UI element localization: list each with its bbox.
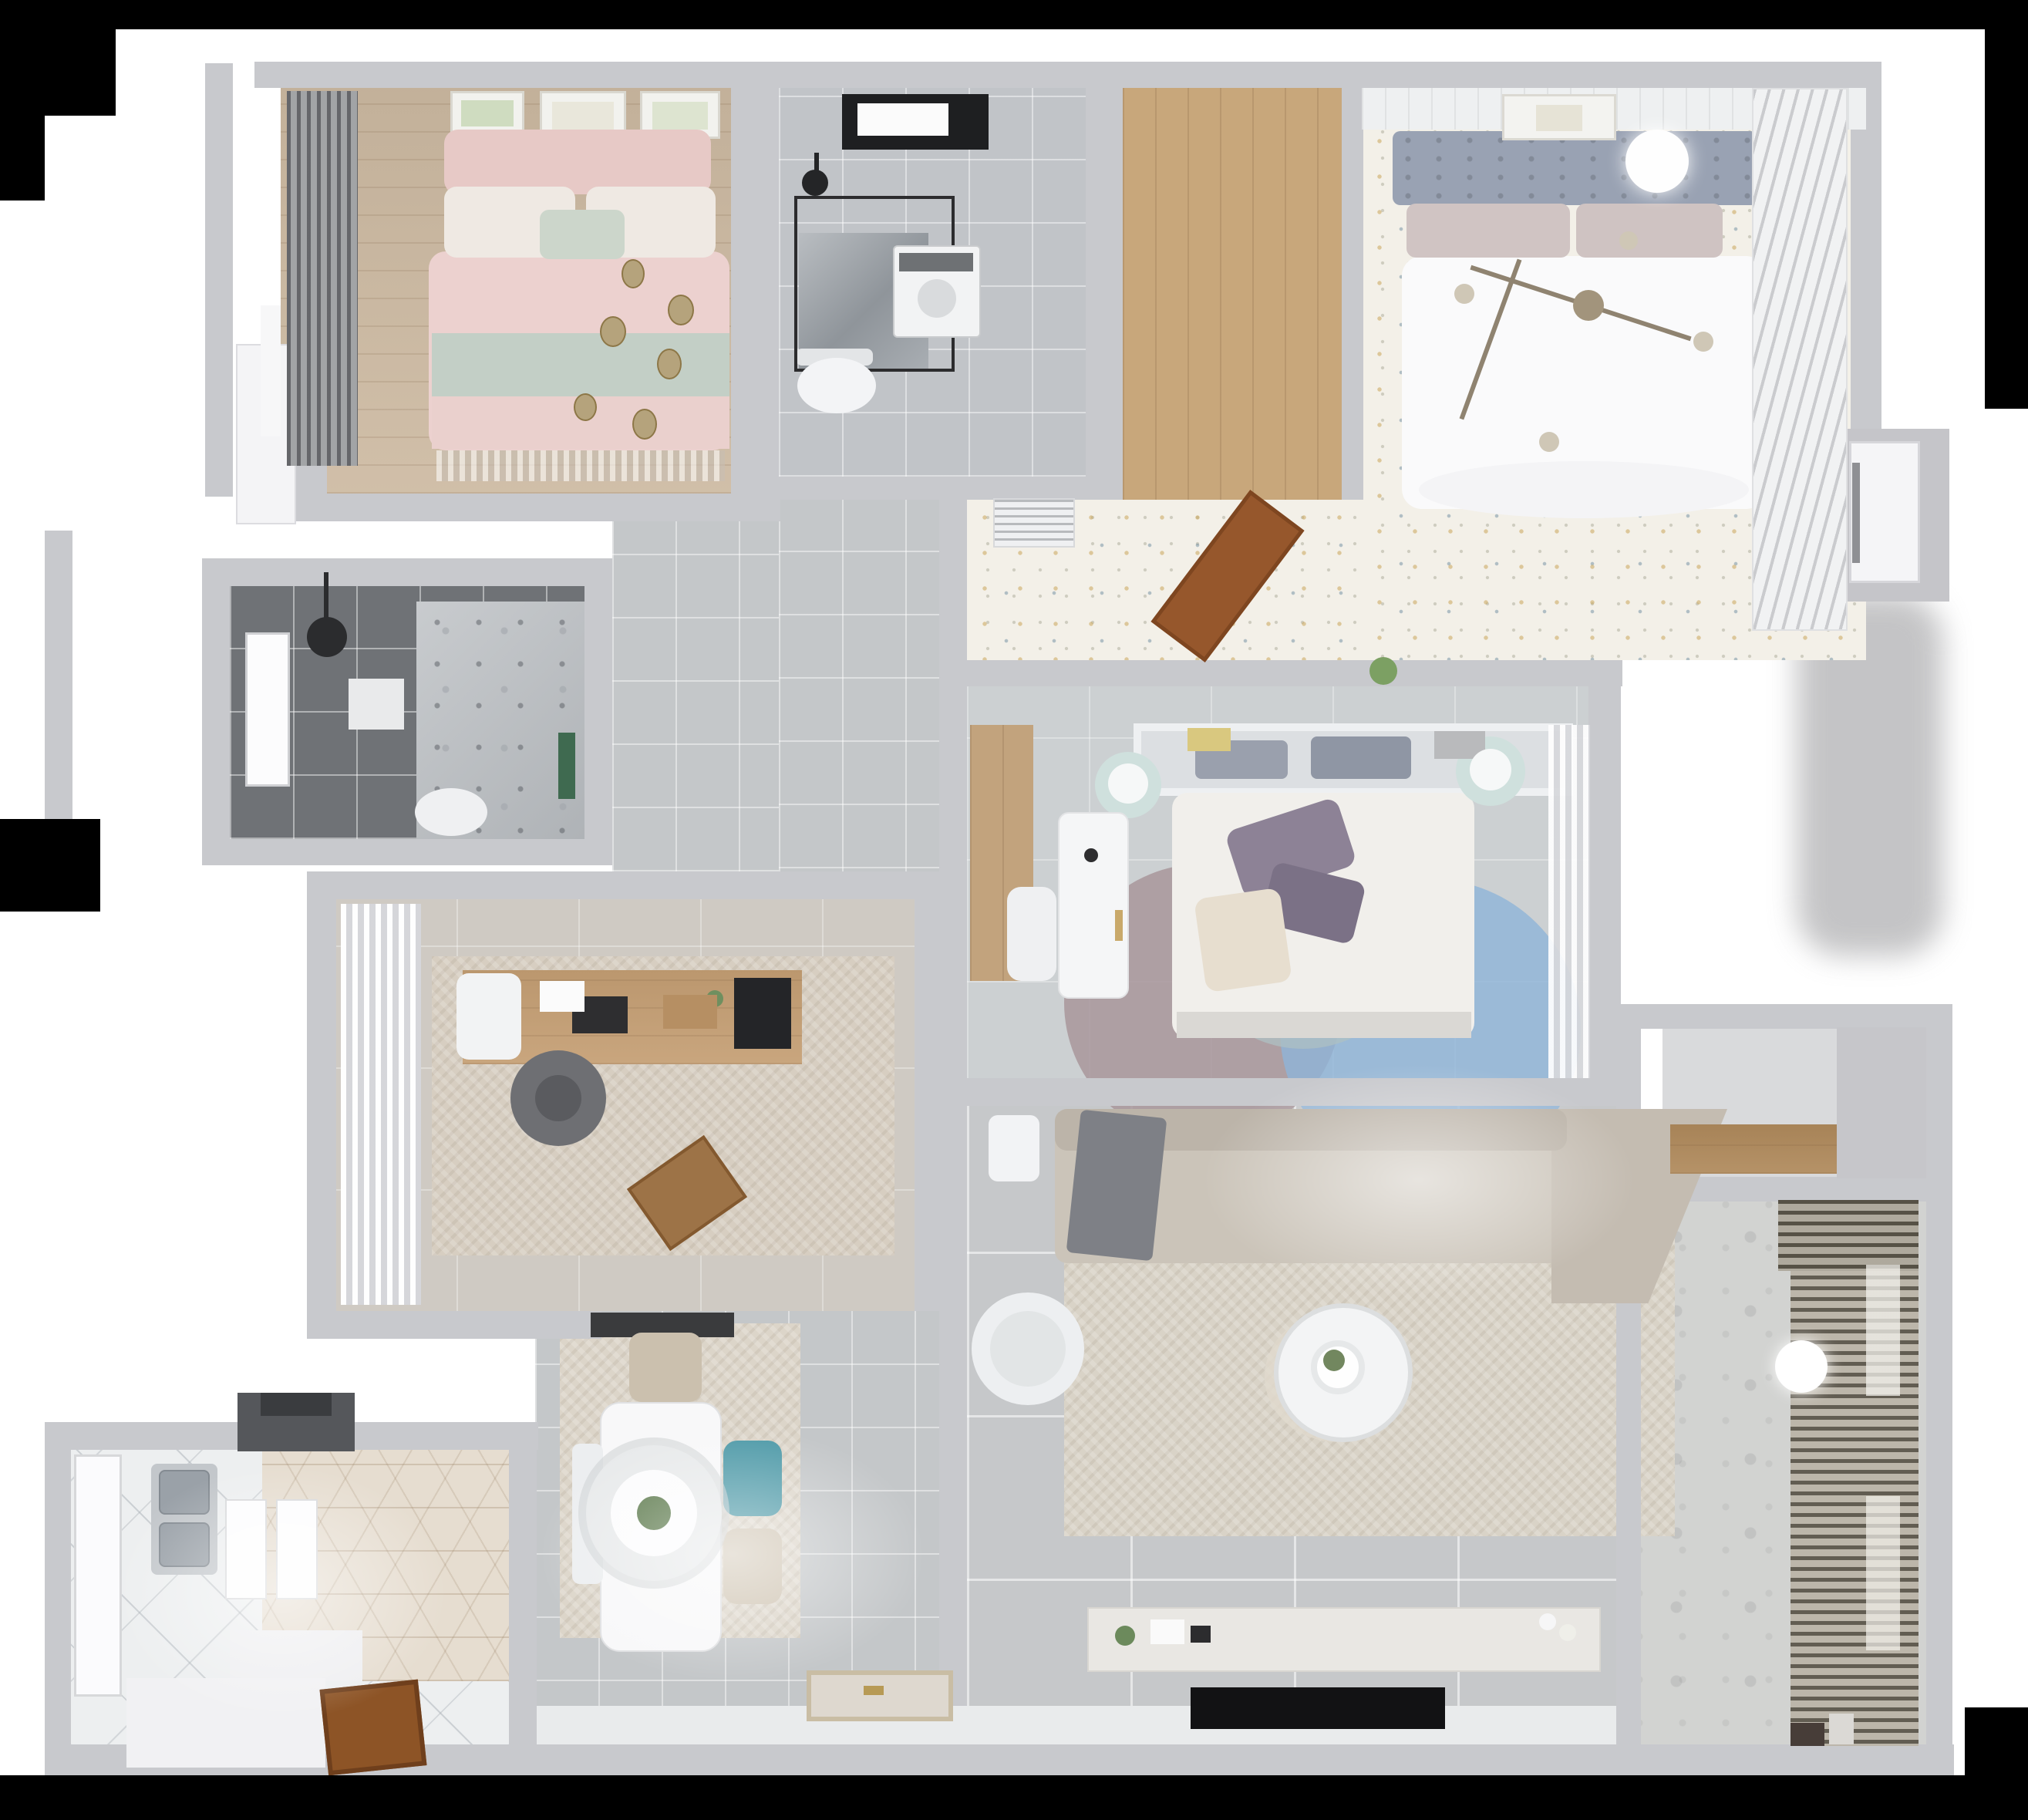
tv-panel xyxy=(1191,1687,1445,1729)
bath2-pendant xyxy=(307,617,347,657)
side-table xyxy=(989,1115,1039,1181)
bed2-desk-handle xyxy=(1115,910,1123,941)
bed2-shelf-pillow2 xyxy=(1311,736,1411,779)
balcony-sphere-light xyxy=(1775,1340,1828,1393)
coffee-table-plant xyxy=(1323,1350,1345,1371)
glow-dining xyxy=(540,1427,925,1681)
bath2-toilet xyxy=(415,788,487,836)
chandelier-bulb-5 xyxy=(632,409,657,440)
bath1-washer-panel xyxy=(899,253,973,271)
wall-bathroom2-right xyxy=(584,558,612,865)
wall-kitchen-right xyxy=(509,1422,537,1777)
master-chandelier-center xyxy=(1573,290,1604,321)
chandelier-bulb-3 xyxy=(600,316,626,347)
bath1-toilet xyxy=(797,358,876,413)
console-plant xyxy=(1115,1626,1135,1646)
master-sphere-light xyxy=(1625,130,1689,193)
master-chand-tip4 xyxy=(1619,231,1638,250)
console-box xyxy=(1150,1619,1184,1644)
chandelier-bulb-4 xyxy=(657,349,682,379)
bath2-shower-mat xyxy=(349,679,404,730)
wall-bathroom2-bottom xyxy=(202,839,612,865)
balcony-glow-2 xyxy=(1866,1496,1900,1650)
floor-hall-pocket xyxy=(612,521,779,871)
floor-closet-wood xyxy=(1123,88,1342,500)
frame-art-1 xyxy=(461,100,514,126)
master-duvet-foot xyxy=(1419,461,1749,518)
kitchen-hood-vent xyxy=(261,1393,332,1416)
master-ac-vent xyxy=(993,498,1075,548)
bed2-desk xyxy=(1058,812,1129,999)
floor-entry-strip xyxy=(535,1706,1616,1746)
bed2-foot-band xyxy=(1177,1012,1471,1038)
wall-bedroom1-bottom xyxy=(285,494,780,521)
master-chand-tip1 xyxy=(1454,284,1474,304)
wall-study-bottom xyxy=(307,1311,601,1339)
wall-top xyxy=(254,62,1881,88)
bed2-chair xyxy=(1007,887,1056,981)
bath2-pendant-stem xyxy=(324,572,328,622)
master-plant xyxy=(1369,657,1397,685)
wall-bathroom1-bottom xyxy=(731,477,1123,500)
wall-kitchen-left xyxy=(45,1422,71,1777)
balcony-toy xyxy=(1791,1723,1824,1746)
master-pillow-right xyxy=(1576,204,1723,258)
master-frame-art xyxy=(1536,105,1582,131)
bath1-skylight-glass xyxy=(857,103,948,136)
letterbox-right-upper xyxy=(1985,29,2028,409)
letterbox-bottom xyxy=(0,1775,2028,1820)
console-speaker xyxy=(1191,1626,1211,1643)
bath1-washer-door xyxy=(918,279,956,318)
study-office-chair-seat xyxy=(535,1075,581,1121)
chandelier-bulb-1 xyxy=(622,259,645,288)
bed2-pillow-cream xyxy=(1194,888,1292,993)
console-cup-1 xyxy=(1539,1613,1556,1630)
chandelier-bulb-6 xyxy=(574,393,597,421)
master-wardrobe-louver xyxy=(1752,88,1848,631)
armchair-seat xyxy=(990,1311,1066,1387)
master-headboard xyxy=(1393,131,1758,205)
wall-bedroom2-top xyxy=(967,660,1622,686)
wall-storage-top xyxy=(1639,1004,1928,1029)
frame-art-3 xyxy=(652,102,708,130)
glow-kitchen xyxy=(116,1465,447,1720)
bed1-pillow-row-pink xyxy=(444,130,711,194)
glow-living xyxy=(1203,1064,1635,1296)
bedroom1-window-glow xyxy=(261,305,281,436)
bedroom1-curtain xyxy=(287,91,358,466)
letterbox-bottom-right xyxy=(1965,1707,2028,1775)
storage-wood-shelf xyxy=(1670,1124,1837,1174)
bed2-desk-item xyxy=(1084,848,1098,862)
balcony-glow-1 xyxy=(1866,1265,1900,1396)
study-curtain xyxy=(341,904,421,1305)
master-pillow-left xyxy=(1406,204,1570,258)
wall-bathroom2-top xyxy=(202,558,612,586)
bath1-shower-arm xyxy=(814,153,819,179)
frame-art-2 xyxy=(552,102,614,130)
balcony-paper xyxy=(1829,1714,1854,1744)
chandelier-bulb-2 xyxy=(668,295,694,325)
bed1-rug-fringe xyxy=(436,450,725,481)
wall-left-outer-mid xyxy=(45,531,72,848)
study-chair-white xyxy=(456,973,521,1060)
wall-bedroom1-right xyxy=(731,62,779,500)
balcony-louver-top xyxy=(1778,1200,1919,1271)
door-right-hinge xyxy=(1852,463,1860,563)
master-chand-tip3 xyxy=(1539,432,1559,452)
wall-left-outer-upper xyxy=(205,63,233,497)
study-paper xyxy=(540,981,584,1012)
bed2-stool-left-top xyxy=(1108,763,1148,804)
sofa-throw-gray xyxy=(1066,1110,1167,1262)
bath2-window xyxy=(245,632,290,787)
study-deskpad xyxy=(663,995,717,1029)
wall-bathroom1-right xyxy=(1086,62,1123,500)
wall-closet-right xyxy=(1342,62,1363,500)
bed2-book1 xyxy=(1187,728,1231,751)
bed2-sheer-curtain xyxy=(1548,725,1590,1078)
letterbox-top xyxy=(0,0,2028,29)
study-monitor xyxy=(734,978,791,1049)
wall-study-left xyxy=(307,871,336,1339)
letterbox-left-mid xyxy=(0,819,100,912)
kitchen-window xyxy=(74,1454,122,1697)
entry-door-handle xyxy=(864,1686,884,1695)
bath2-green-accent xyxy=(558,733,575,799)
bed2-stool-right-top xyxy=(1470,749,1511,790)
console-cup-2 xyxy=(1559,1624,1576,1641)
wall-bathroom2-left xyxy=(202,558,230,864)
wall-right-lower xyxy=(1926,1004,1952,1778)
wall-study-top xyxy=(307,871,924,899)
floorplan-stage xyxy=(0,0,2028,1820)
master-chand-tip2 xyxy=(1693,332,1713,352)
bed1-pillow-sage xyxy=(540,210,625,259)
storage-block xyxy=(1837,1027,1926,1178)
dining-chair-top xyxy=(629,1333,702,1402)
letterbox-left-upper xyxy=(0,29,45,201)
